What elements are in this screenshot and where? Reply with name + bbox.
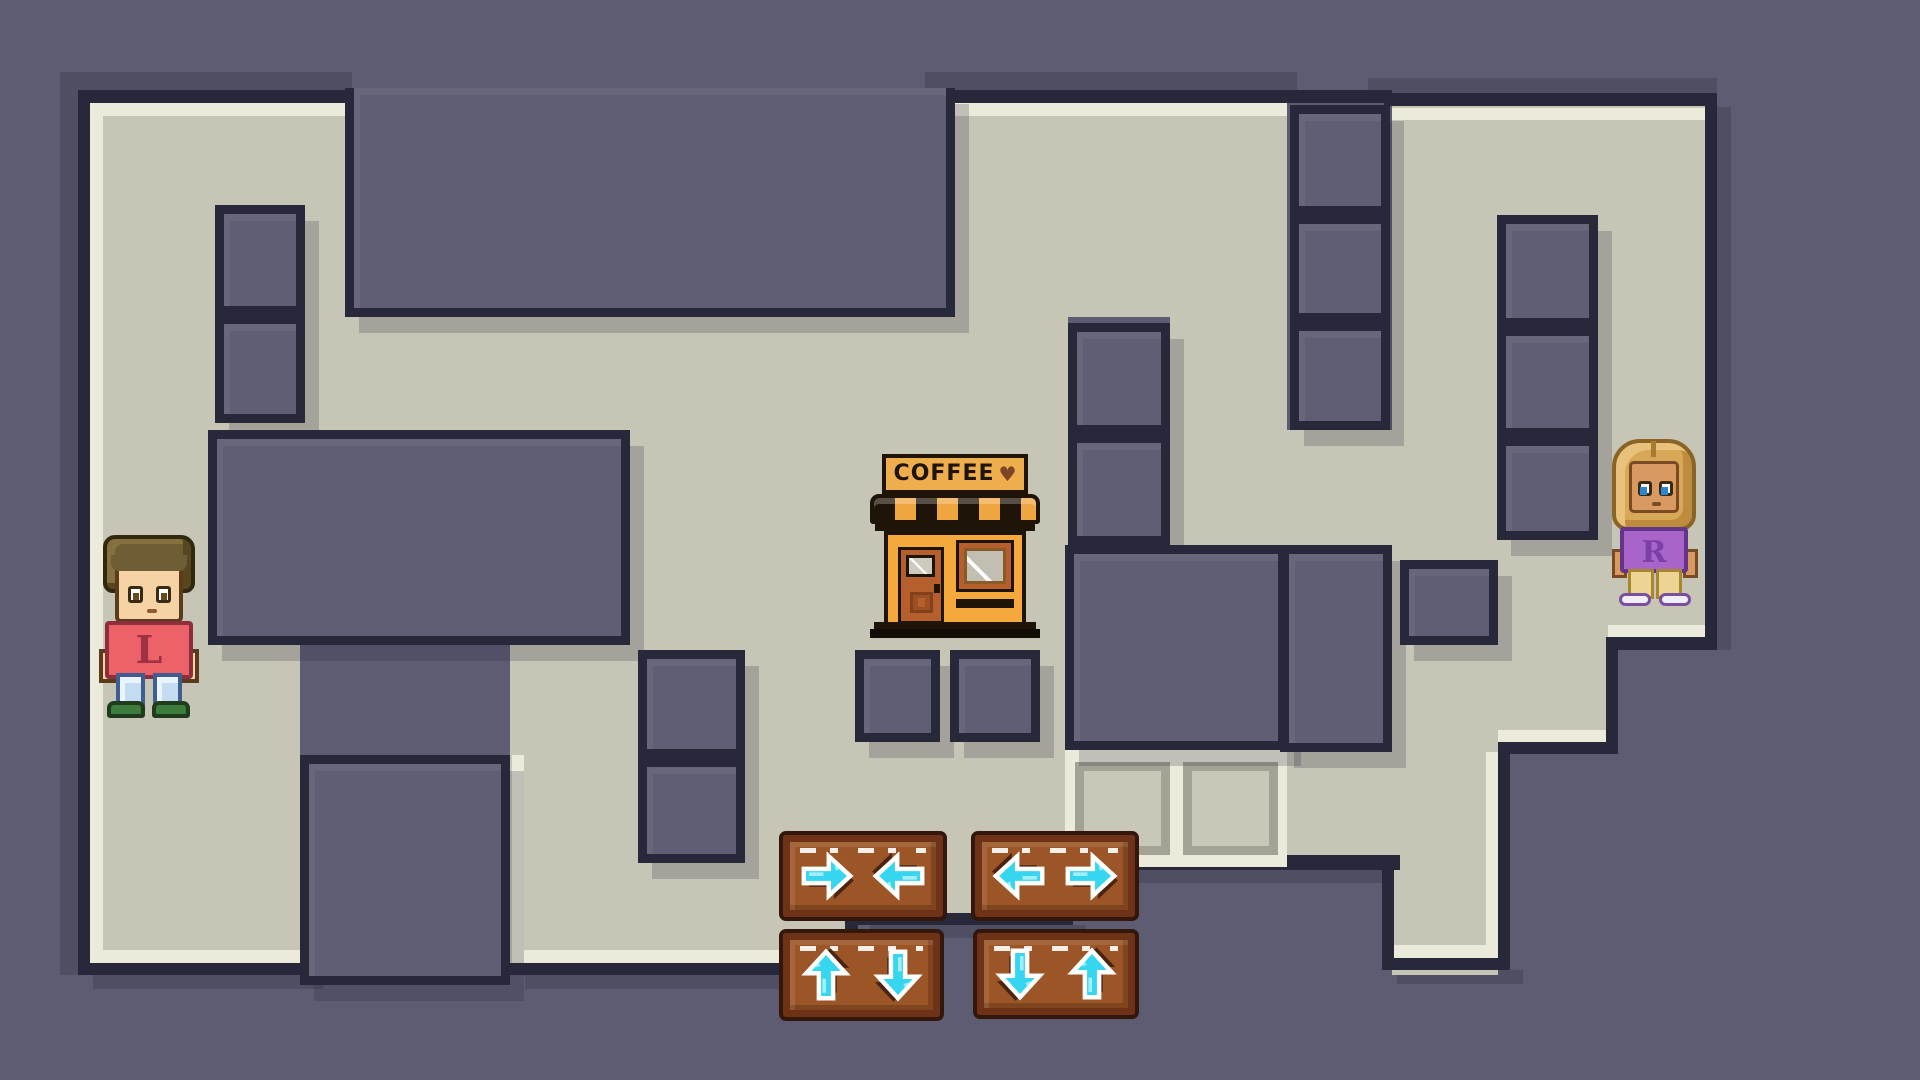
- down-up-button[interactable]: [977, 933, 1135, 1015]
- coffee-shop: COFFEE ♥: [870, 452, 1040, 638]
- boy-shirt: L: [105, 621, 193, 679]
- shop-awning: [870, 494, 1040, 524]
- shop-stripe: [956, 599, 1014, 608]
- shop-body: [884, 531, 1026, 628]
- girl-mouth: [1652, 502, 1661, 506]
- girl-right-shoe: [1659, 593, 1691, 606]
- shop-door-knob: [934, 584, 940, 593]
- player-right-girl: R: [1612, 437, 1698, 603]
- maze-border: [78, 963, 310, 975]
- left-arrow-icon: [990, 851, 1048, 901]
- maze-outer-shadow: [1717, 107, 1731, 650]
- floor-region: [955, 317, 1068, 430]
- left-arrow-icon: [870, 851, 928, 901]
- floor-region: [955, 103, 1287, 317]
- wall-block: [1065, 545, 1287, 750]
- right-arrow-icon: [798, 851, 856, 901]
- maze-border: [1606, 637, 1717, 650]
- maze-border: [1705, 95, 1717, 650]
- floor-edge-highlight: [1392, 945, 1498, 958]
- down-arrow-icon: [873, 946, 923, 1004]
- wall-block: [300, 755, 510, 985]
- converge-horizontal-button[interactable]: [783, 835, 943, 917]
- up-arrow-icon: [801, 946, 851, 1004]
- maze-border: [1382, 958, 1510, 970]
- wall-block: [1290, 215, 1390, 322]
- floor-region: [1170, 317, 1287, 545]
- girl-hair-part: [1651, 441, 1656, 457]
- maze-outer-shadow: [925, 72, 1297, 90]
- shop-window: [956, 540, 1014, 592]
- boy-hair-fringe: [111, 555, 187, 571]
- shop-window-glass: [964, 548, 1006, 584]
- girl-shirt: R: [1620, 527, 1688, 573]
- girl-face: [1629, 461, 1679, 513]
- maze-border: [1382, 867, 1394, 970]
- down-arrow-icon: [995, 945, 1045, 1003]
- wall-block: [1068, 434, 1170, 545]
- wall-block: [638, 758, 745, 863]
- maze-outer-shadow: [60, 72, 352, 90]
- wall-block: [1497, 437, 1598, 540]
- goal-tile: [1183, 762, 1278, 855]
- boy-shirt-letter: L: [109, 631, 189, 669]
- boy-left-eye: [128, 586, 143, 603]
- wall-block: [950, 650, 1040, 742]
- wall-block: [1497, 215, 1598, 327]
- maze-border: [1498, 742, 1618, 754]
- wall-block: [215, 315, 305, 423]
- shop-door-window: [906, 555, 935, 577]
- diverge-horizontal-button[interactable]: [975, 835, 1135, 917]
- floor-edge-highlight: [512, 755, 524, 955]
- girl-shirt-letter: R: [1624, 538, 1684, 568]
- wall-block: [1290, 105, 1390, 215]
- shop-door-panel: [910, 592, 933, 613]
- floor-edge-highlight: [1608, 625, 1705, 637]
- coffee-shop-sign-text: COFFEE: [894, 463, 995, 485]
- floor-region: [1392, 637, 1498, 975]
- maze-border: [78, 90, 90, 975]
- maze-border: [78, 90, 352, 103]
- coffee-shop-sign: COFFEE ♥: [882, 454, 1028, 494]
- maze-border: [943, 90, 1392, 103]
- game-scene: COFFEE ♥ L: [0, 0, 1920, 1080]
- up-down-button[interactable]: [783, 933, 940, 1017]
- wall-block: [1280, 545, 1392, 752]
- shop-door: [898, 547, 944, 624]
- floor-edge-highlight: [1392, 108, 1705, 120]
- floor-edge-highlight: [955, 103, 1287, 116]
- wall-block: [1497, 327, 1598, 437]
- floor-region: [1498, 637, 1608, 742]
- player-left-boy: L: [101, 535, 199, 711]
- shop-base: [870, 629, 1040, 638]
- maze-border: [1498, 742, 1510, 970]
- right-arrow-icon: [1062, 851, 1120, 901]
- maze-border: [1384, 93, 1717, 106]
- wall-block: [215, 205, 305, 315]
- maze-border: [1606, 645, 1618, 752]
- wall-block: [855, 650, 940, 742]
- wall-block: [1400, 560, 1498, 645]
- heart-icon: ♥: [999, 464, 1017, 484]
- girl-right-eye: [1659, 481, 1673, 496]
- boy-mouth: [147, 609, 157, 613]
- wall-block: [345, 88, 955, 317]
- wall-block: [208, 430, 630, 645]
- floor-edge-highlight: [90, 103, 103, 963]
- boy-left-shoe: [107, 701, 145, 718]
- wall-block: [1068, 323, 1170, 434]
- maze-outer-shadow: [93, 975, 323, 989]
- wall-block: [638, 650, 745, 758]
- shop-awning-band: [875, 522, 1035, 531]
- boy-right-shoe: [152, 701, 190, 718]
- floor-edge-highlight: [90, 103, 345, 116]
- up-arrow-icon: [1067, 945, 1117, 1003]
- floor-edge-highlight: [90, 950, 312, 963]
- floor-edge-highlight: [1486, 752, 1498, 952]
- floor-region: [1287, 430, 1392, 545]
- girl-left-shoe: [1619, 593, 1651, 606]
- boy-right-eye: [156, 586, 171, 603]
- floor-region: [345, 317, 955, 430]
- wall-block: [1290, 322, 1390, 430]
- girl-left-eye: [1638, 481, 1652, 496]
- floor-edge-highlight: [1498, 730, 1608, 742]
- maze-outer-shadow: [60, 72, 78, 975]
